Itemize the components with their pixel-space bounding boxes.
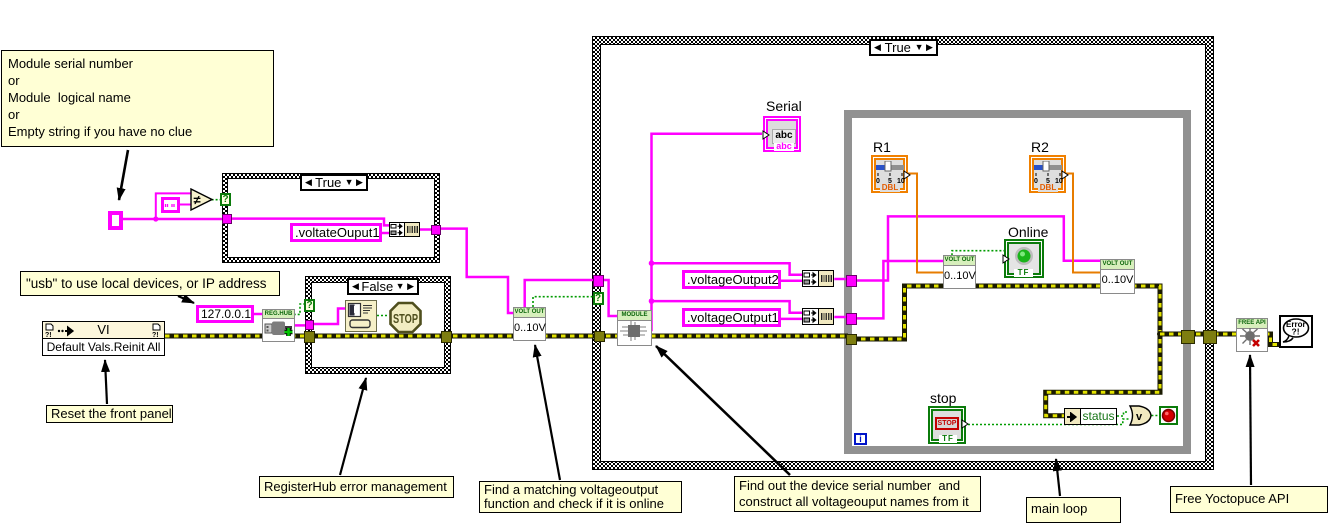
svg-text:v: v [1136, 411, 1143, 423]
svg-text:0: 0 [876, 178, 880, 183]
svg-text:STOP: STOP [393, 311, 418, 326]
svg-text:?!: ?! [1292, 327, 1300, 337]
svg-text:?!: ?! [45, 332, 52, 338]
svg-text:≠: ≠ [194, 193, 201, 208]
svg-text:0: 0 [1034, 178, 1038, 183]
svg-text:?!: ?! [152, 332, 159, 338]
